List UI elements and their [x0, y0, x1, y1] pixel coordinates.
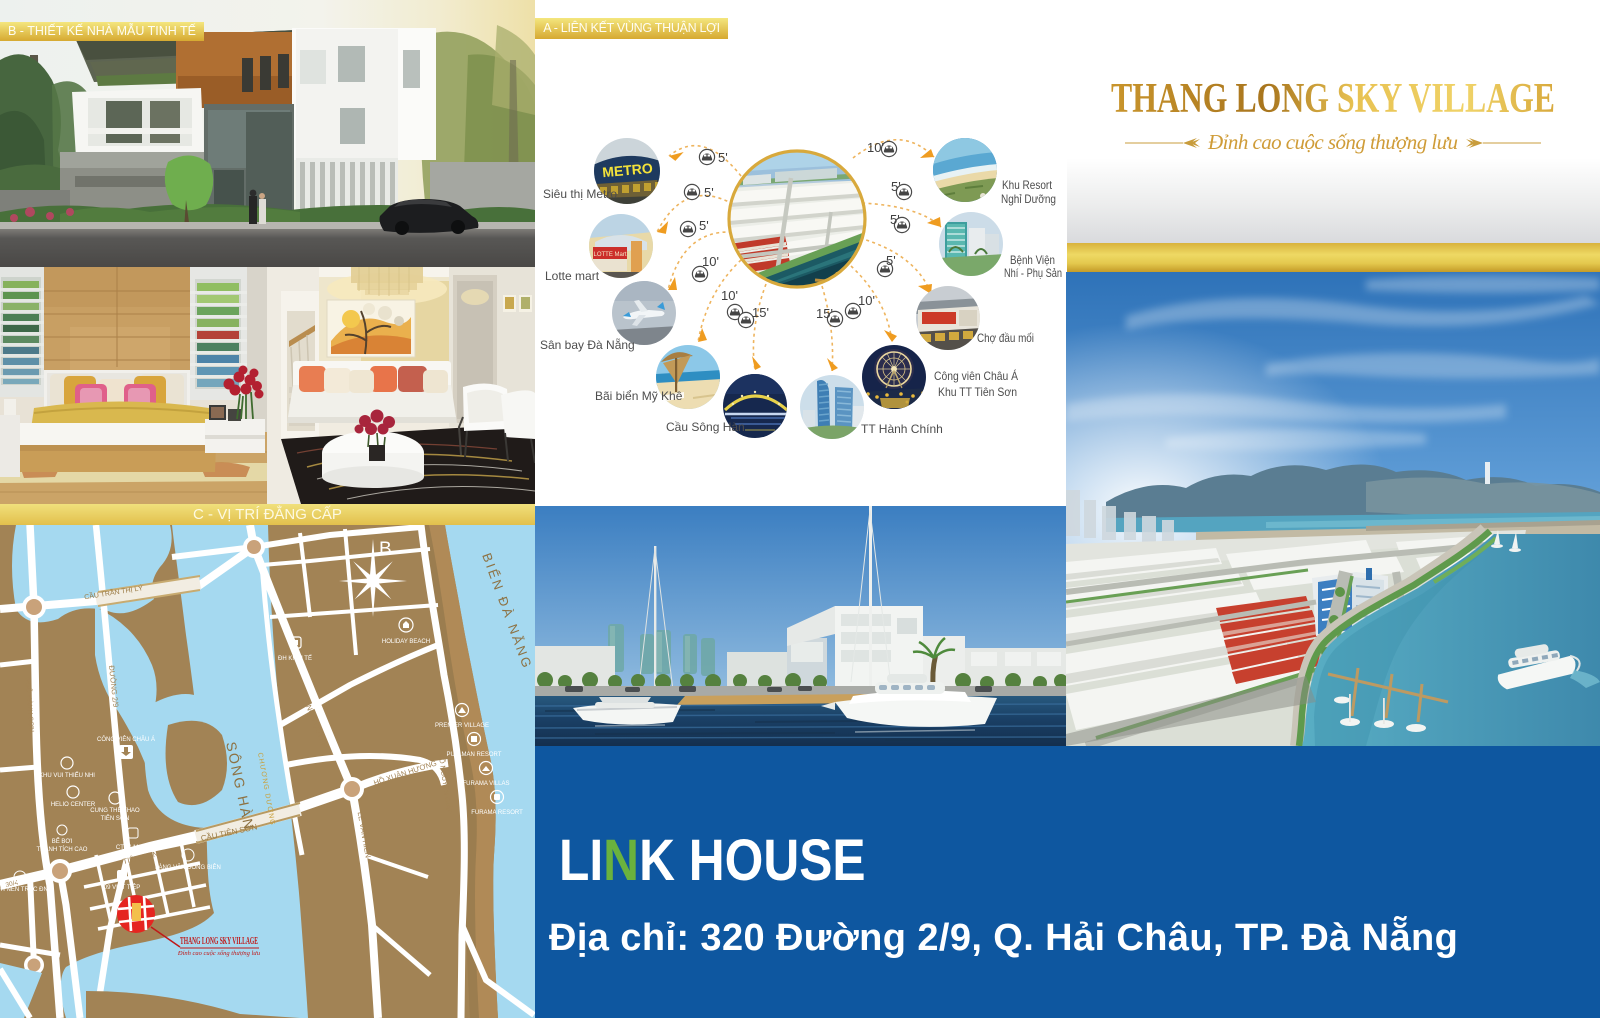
svg-text:Đỉnh cao cuộc sống thượng lưu: Đỉnh cao cuộc sống thượng lưu [1207, 130, 1458, 154]
svg-text:CUNG THỂ THAO: CUNG THỂ THAO [90, 807, 140, 814]
svg-text:Nhí - Phụ Sản: Nhí - Phụ Sản [1004, 266, 1062, 280]
svg-text:15': 15' [816, 306, 833, 321]
svg-text:FURAMA VILLAS: FURAMA VILLAS [462, 781, 509, 787]
svg-text:15': 15' [752, 305, 769, 320]
svg-text:09 VIỆT TIỆP: 09 VIỆT TIỆP [104, 883, 140, 891]
svg-text:LÀNG VĂN ĐÔNG BIÊN: LÀNG VĂN ĐÔNG BIÊN [155, 863, 221, 871]
svg-text:PULLMAN RESORT: PULLMAN RESORT [447, 752, 502, 758]
svg-text:10': 10' [867, 140, 884, 155]
svg-text:5': 5' [886, 253, 896, 268]
svg-text:THÀNH TÍCH CAO: THÀNH TÍCH CAO [37, 846, 88, 853]
svg-text:HOLIDAY BEACH: HOLIDAY BEACH [382, 639, 430, 645]
svg-text:KHU VUI THIẾU NHI: KHU VUI THIẾU NHI [39, 772, 95, 779]
svg-text:CTTS MART: CTTS MART [116, 845, 151, 851]
svg-text:ĐH KINH TẾ: ĐH KINH TẾ [278, 655, 312, 662]
svg-text:Cầu Sông Hàn: Cầu Sông Hàn [666, 420, 745, 434]
svg-text:ĐH NỀN TRÚC ĐN: ĐH NỀN TRÚC ĐN [0, 886, 48, 893]
svg-text:5': 5' [704, 185, 714, 200]
svg-text:5': 5' [891, 179, 901, 194]
svg-text:Khu TT Tiên Sơn: Khu TT Tiên Sơn [938, 385, 1017, 399]
svg-text:5': 5' [718, 150, 728, 165]
svg-text:Đỉnh cao cuộc sống thượng lưu: Đỉnh cao cuộc sống thượng lưu [177, 950, 261, 957]
svg-text:5': 5' [699, 218, 709, 233]
svg-text:10': 10' [721, 288, 738, 303]
svg-text:B: B [379, 539, 392, 560]
svg-text:FURAMA RESORT: FURAMA RESORT [471, 810, 523, 816]
svg-text:Lotte mart: Lotte mart [545, 269, 600, 283]
svg-text:THANG LONG SKY VILLAGE: THANG LONG SKY VILLAGE [1111, 76, 1555, 122]
svg-text:Bệnh Viện: Bệnh Viện [1010, 253, 1055, 267]
svg-text:Bãi biển Mỹ Khê: Bãi biển Mỹ Khê [595, 389, 683, 403]
svg-text:BỂ BƠI: BỂ BƠI [52, 838, 73, 845]
svg-text:Chợ đầu mối: Chợ đầu mối [977, 331, 1034, 345]
svg-text:THANG LONG SKY VILLAGE: THANG LONG SKY VILLAGE [180, 936, 258, 947]
svg-text:PREMIER VILLAGE: PREMIER VILLAGE [435, 723, 489, 729]
svg-text:TIÊN SƠN: TIÊN SƠN [101, 814, 130, 822]
svg-text:Nghỉ Dưỡng: Nghỉ Dưỡng [1001, 192, 1056, 206]
svg-text:Siêu thị Metro: Siêu thị Metro [543, 187, 617, 201]
svg-text:Công viên Châu Á: Công viên Châu Á [934, 368, 1018, 383]
svg-text:5': 5' [890, 212, 900, 227]
svg-text:HELIO CENTER: HELIO CENTER [51, 802, 96, 808]
svg-text:Khu Resort: Khu Resort [1002, 178, 1053, 192]
svg-text:TT Hành Chính: TT Hành Chính [861, 422, 943, 436]
svg-text:LOTTE Mart: LOTTE Mart [593, 252, 626, 258]
svg-text:Sân bay Đà Nẵng: Sân bay Đà Nẵng [540, 337, 635, 352]
svg-text:10': 10' [858, 293, 875, 308]
svg-text:10': 10' [702, 254, 719, 269]
svg-text:CÔNG VIÊN CHÂU Á: CÔNG VIÊN CHÂU Á [97, 735, 155, 743]
